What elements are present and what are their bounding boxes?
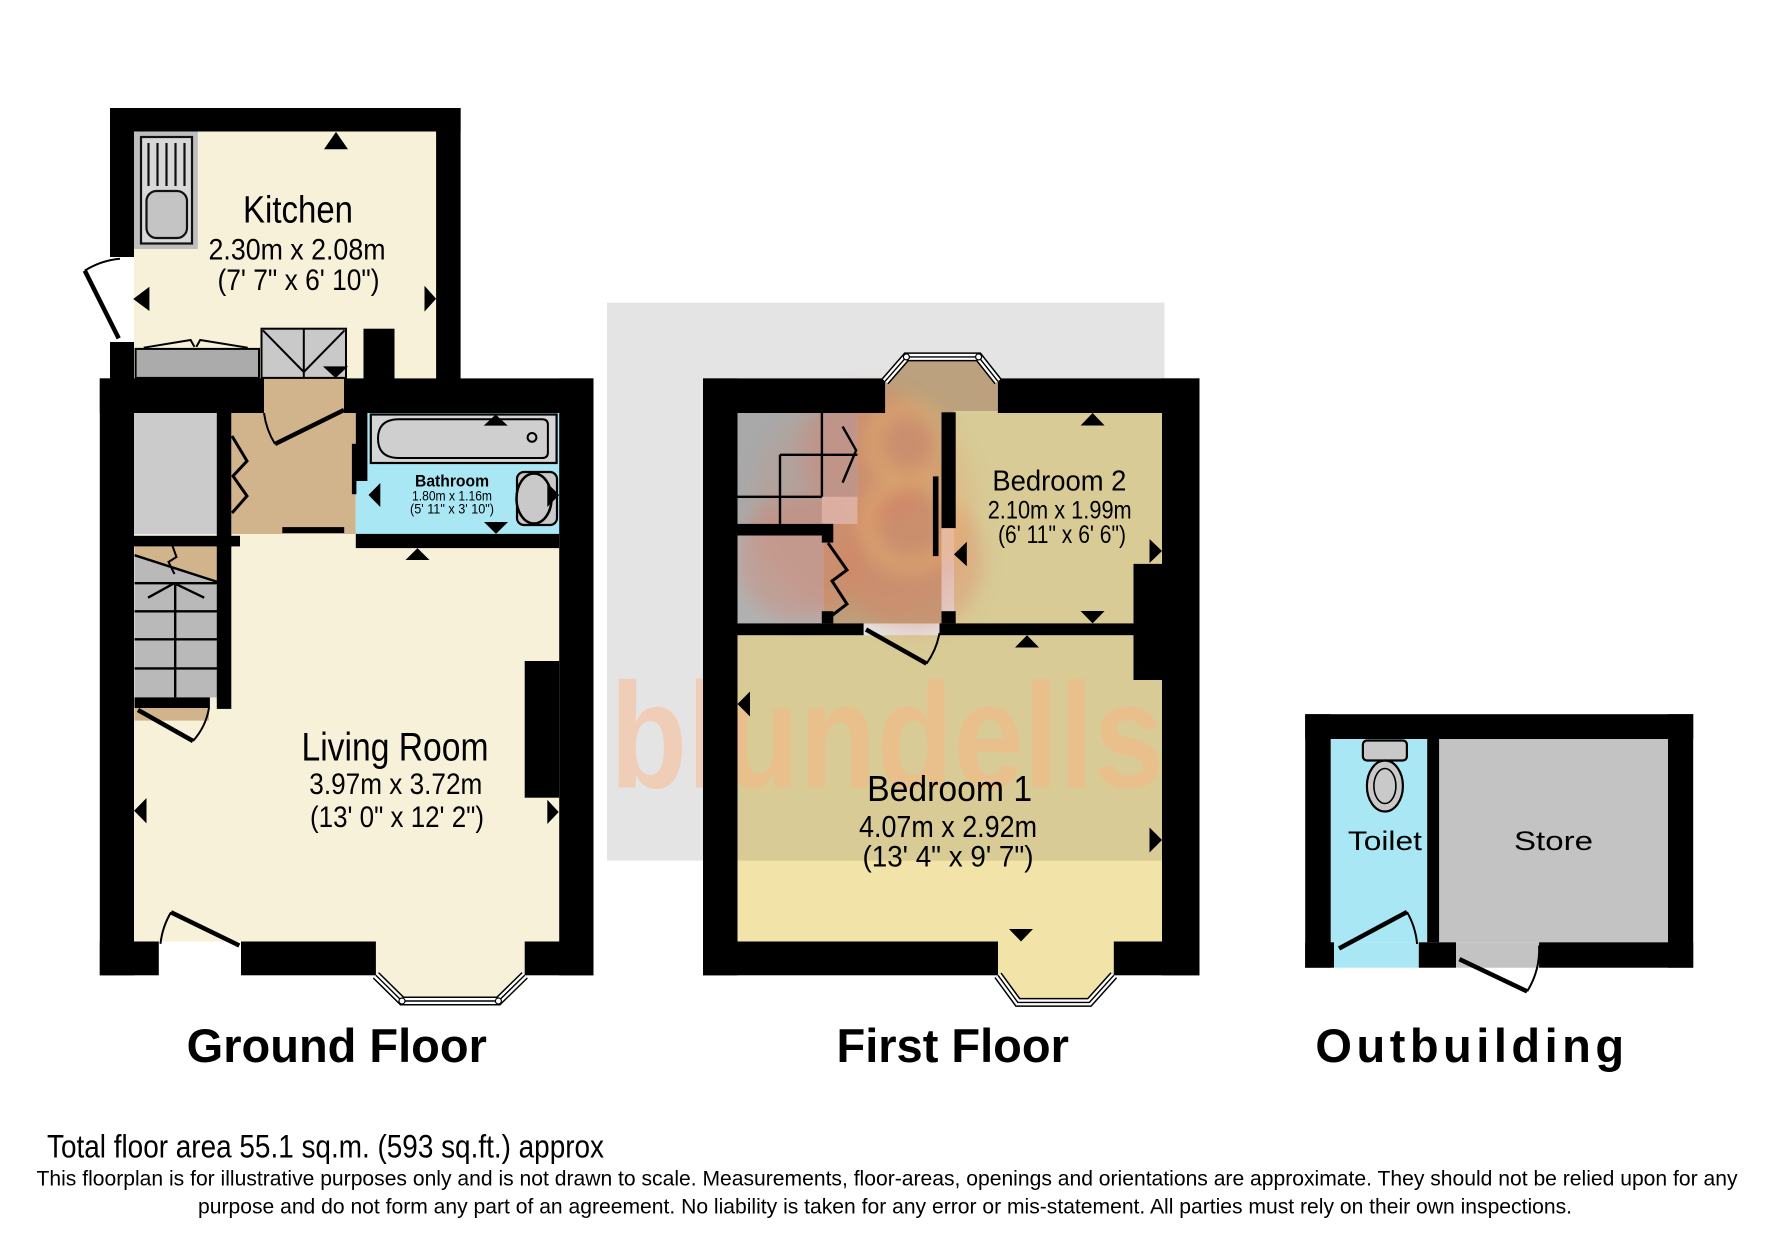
svg-text:(6' 11" x 6' 6"): (6' 11" x 6' 6") <box>998 521 1126 549</box>
svg-text:purpose and do not form any pa: purpose and do not form any part of an a… <box>198 1196 1572 1219</box>
svg-text:(7' 7" x 6' 10"): (7' 7" x 6' 10") <box>218 264 380 297</box>
svg-text:Bathroom: Bathroom <box>415 471 489 490</box>
svg-text:Living Room: Living Room <box>302 726 489 770</box>
svg-text:Bedroom 1: Bedroom 1 <box>867 768 1032 809</box>
svg-text:(13' 0" x 12' 2"): (13' 0" x 12' 2") <box>310 801 484 834</box>
svg-text:Total floor area 55.1 sq.m. (5: Total floor area 55.1 sq.m. (593 sq.ft.)… <box>47 1128 604 1164</box>
svg-text:Store: Store <box>1514 826 1593 856</box>
svg-text:4.07m x 2.92m: 4.07m x 2.92m <box>859 809 1037 844</box>
svg-text:(13' 4" x 9' 7"): (13' 4" x 9' 7") <box>863 841 1034 874</box>
svg-text:Outbuilding: Outbuilding <box>1315 1019 1628 1072</box>
svg-text:Ground Floor: Ground Floor <box>187 1019 487 1072</box>
svg-text:Bedroom 2: Bedroom 2 <box>992 466 1126 498</box>
svg-text:(5' 11" x 3' 10"): (5' 11" x 3' 10") <box>410 501 494 516</box>
svg-text:2.30m x 2.08m: 2.30m x 2.08m <box>209 233 386 266</box>
svg-text:This floorplan is for illustra: This floorplan is for illustrative purpo… <box>37 1168 1738 1191</box>
svg-text:Toilet: Toilet <box>1348 826 1423 856</box>
svg-text:First Floor: First Floor <box>837 1019 1069 1072</box>
svg-text:3.97m x 3.72m: 3.97m x 3.72m <box>309 768 482 801</box>
svg-text:Kitchen: Kitchen <box>243 190 353 232</box>
